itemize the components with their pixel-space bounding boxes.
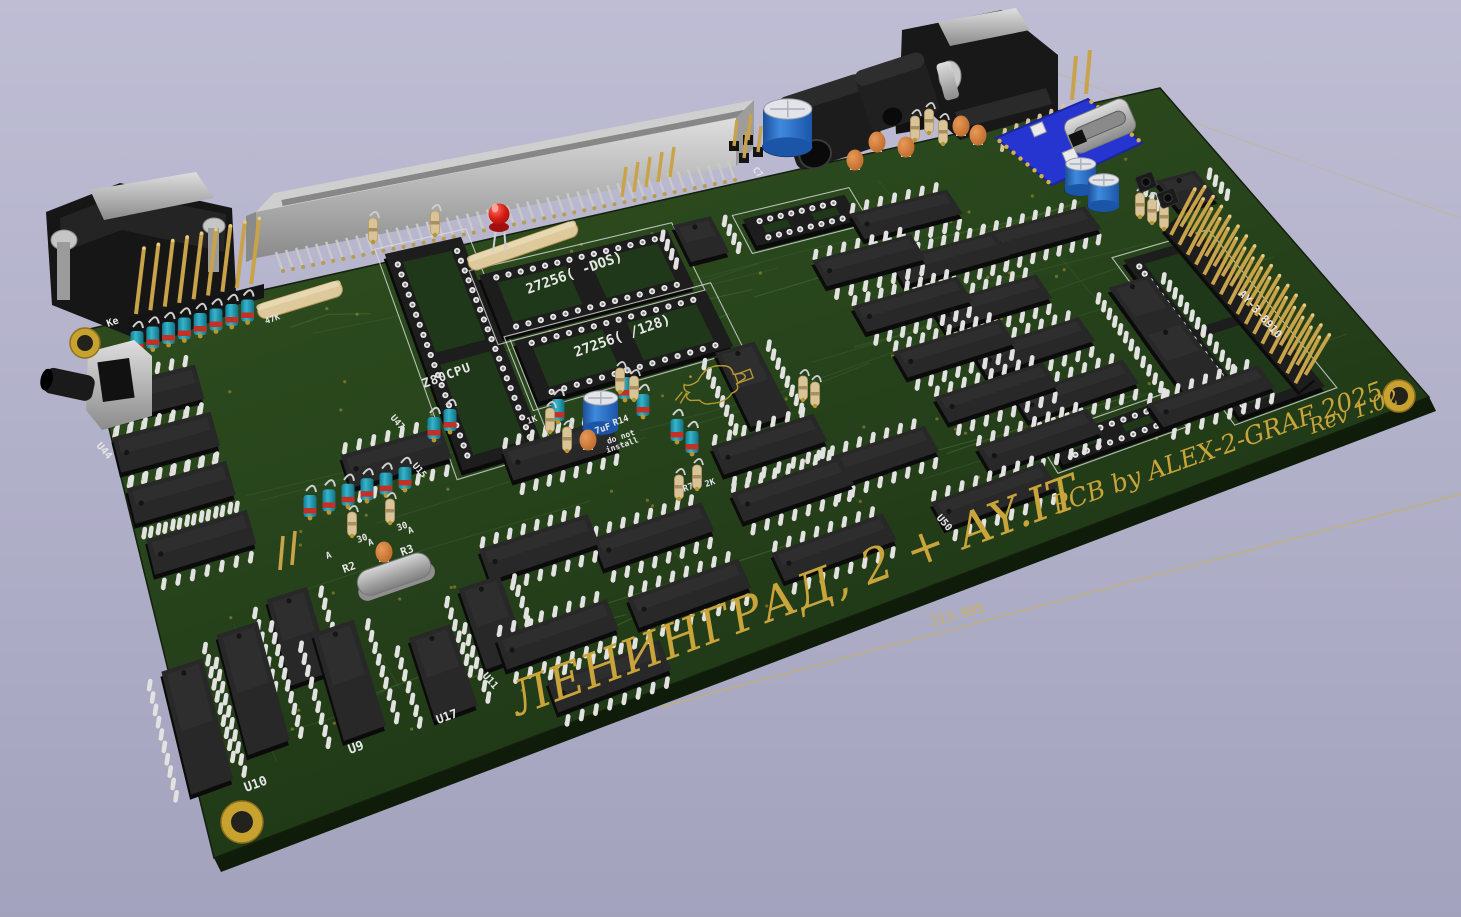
pad	[683, 188, 687, 192]
ic-notch	[286, 598, 291, 603]
ic-pin	[371, 632, 372, 640]
ic-pin	[294, 705, 295, 713]
ic-pin	[277, 646, 278, 654]
pin-tip	[142, 246, 146, 250]
via	[229, 616, 232, 619]
ic-pin	[1025, 270, 1026, 278]
ic-pin	[975, 318, 976, 326]
ic-notch	[745, 501, 750, 506]
ceramic-cap-body	[210, 309, 223, 331]
ic-pin	[893, 274, 894, 282]
cap-band	[637, 407, 650, 413]
ic-pin	[1186, 304, 1187, 312]
socket-hole-center	[580, 256, 583, 259]
ic-pin	[567, 562, 568, 570]
via	[964, 432, 967, 435]
ic-notch	[992, 453, 997, 458]
ic-pin	[1056, 373, 1057, 381]
ic-pin	[567, 716, 568, 724]
ic-pin	[602, 460, 603, 468]
ic-pin	[321, 715, 322, 723]
solder-pad	[677, 497, 681, 501]
ic-pin	[867, 294, 868, 302]
ic-pin	[373, 436, 374, 444]
ic-pin	[989, 473, 990, 481]
ic-pin	[899, 229, 900, 237]
resistor-band	[693, 475, 702, 479]
ic-pin	[906, 282, 907, 290]
ic-pin	[1006, 428, 1007, 436]
socket-hole-center	[642, 312, 645, 315]
ic-pin	[1022, 313, 1023, 321]
pin-tip	[1218, 217, 1221, 220]
socket-hole-center	[667, 305, 670, 308]
ic-pin	[446, 467, 447, 475]
ic-pin	[985, 281, 986, 289]
pin-tip	[1235, 237, 1238, 240]
ceramic-cap-body	[444, 409, 457, 431]
ic-pin	[990, 370, 991, 378]
ic-pin	[202, 458, 203, 466]
ic-pin	[523, 525, 524, 533]
ic-pin	[1014, 329, 1015, 337]
ic-pin	[522, 485, 523, 493]
ic-pin	[1149, 395, 1150, 403]
ic-pin	[1221, 184, 1222, 192]
ic-pin	[1084, 445, 1085, 453]
ic-pin	[472, 647, 473, 655]
socket-hole-center	[556, 261, 559, 264]
pin-tip	[171, 239, 175, 243]
ic-pin	[662, 232, 663, 240]
via	[453, 585, 456, 588]
ic-notch	[158, 551, 163, 556]
ic-pin	[220, 705, 221, 713]
socket-hole-center	[664, 358, 667, 361]
ic-pin	[935, 184, 936, 192]
ic-pin	[540, 571, 541, 579]
socket-hole-center	[1132, 433, 1135, 436]
ceramic-cap-body	[323, 489, 336, 511]
via	[1031, 194, 1034, 197]
solder-pad	[1162, 227, 1166, 231]
ic-pin	[401, 659, 402, 667]
ic-pin	[186, 408, 187, 416]
ic-pin	[522, 598, 523, 606]
ic-pin	[432, 471, 433, 479]
resistor-band	[799, 386, 808, 390]
ic-pin	[992, 432, 993, 440]
ic-pin	[562, 472, 563, 480]
ic-pin	[222, 507, 223, 515]
socket-hole-center	[426, 344, 429, 347]
ic-pin	[1072, 243, 1073, 251]
ceramic-cap-body	[304, 495, 317, 517]
ic-pin	[880, 290, 881, 298]
ic-pin	[328, 612, 329, 620]
ic-pin	[1067, 313, 1068, 321]
solder-pad	[548, 430, 552, 434]
ic-notch	[1164, 409, 1169, 414]
via	[1055, 275, 1058, 278]
ic-pin	[187, 517, 188, 525]
ic-pin	[984, 359, 985, 367]
resistor-band	[431, 221, 440, 225]
resistor-band	[1148, 209, 1157, 213]
module-castellation	[1032, 168, 1036, 172]
ic-pin	[988, 314, 989, 322]
pin-tip	[1245, 234, 1248, 237]
ic-pin	[541, 613, 542, 621]
ic-pin	[622, 519, 623, 527]
ic-pin	[178, 575, 179, 583]
ic-pin	[1027, 325, 1028, 333]
ic-pin	[658, 578, 659, 586]
ic-pin	[1070, 369, 1071, 377]
via	[398, 597, 401, 600]
ic-pin	[950, 383, 951, 391]
ic-pin	[802, 533, 803, 541]
ic-pin	[624, 695, 625, 703]
via	[450, 586, 453, 589]
ic-notch	[867, 314, 872, 319]
ic-pin	[957, 368, 958, 376]
ic-pin	[1034, 212, 1035, 220]
pin-tip	[1220, 205, 1223, 208]
module-castellation	[1136, 138, 1140, 142]
solder-pad	[182, 338, 187, 343]
solder-pad	[1150, 221, 1154, 225]
socket-hole-center	[799, 228, 802, 231]
ic-pin	[638, 689, 639, 697]
ic-pin	[595, 706, 596, 714]
ic-pin	[998, 355, 999, 363]
cap-band	[686, 444, 699, 450]
pin-tip	[229, 224, 233, 228]
ic-notch	[236, 633, 241, 638]
ic-pin	[554, 608, 555, 616]
ic-pin	[375, 644, 376, 652]
via	[859, 500, 862, 503]
ic-pin	[768, 342, 769, 350]
ic-notch	[1177, 178, 1182, 183]
socket-hole-center	[555, 335, 558, 338]
ic-pin	[382, 667, 383, 675]
solder-pad	[632, 398, 636, 402]
ic-pin	[328, 739, 329, 747]
ic-pin	[1098, 294, 1099, 302]
ceramic-cap-body	[241, 300, 254, 322]
ic-pin	[1018, 362, 1019, 370]
ic-pin	[1103, 302, 1104, 310]
ic-pin	[893, 286, 894, 294]
ceramic-cap-body	[342, 484, 355, 506]
ic-pin	[387, 432, 388, 440]
ic-pin	[236, 558, 237, 566]
socket-hole-center	[407, 293, 410, 296]
pin-tip	[257, 217, 261, 221]
ic-pin	[1187, 424, 1188, 432]
pad	[432, 239, 436, 243]
ic-pin	[966, 273, 967, 281]
solder-pad	[214, 329, 219, 334]
ic-pin	[1060, 205, 1061, 213]
ic-pin	[144, 419, 145, 427]
pin-tip	[1268, 276, 1271, 279]
socket-hole-center	[506, 377, 509, 380]
via	[291, 727, 294, 730]
ic-pin	[1008, 219, 1009, 227]
ic-notch	[181, 670, 186, 675]
ic-pin	[1149, 366, 1150, 374]
ic-pin	[1047, 414, 1048, 422]
ic-pin	[767, 520, 768, 528]
led-body	[489, 204, 510, 225]
socket-hole-center	[788, 231, 791, 234]
ic-pin	[1013, 407, 1014, 415]
solder-pad	[432, 438, 437, 443]
ic-pin	[709, 539, 710, 547]
ic-pin	[404, 671, 405, 679]
resistor-band	[616, 378, 625, 382]
ic-pin	[230, 504, 231, 512]
via	[325, 307, 328, 310]
socket-hole-center	[397, 263, 400, 266]
socket-hole-center	[651, 362, 654, 365]
ic-pin	[893, 473, 894, 481]
pad	[281, 269, 285, 273]
solder-pad	[327, 510, 332, 515]
pin-tip	[1193, 187, 1196, 190]
socket-hole-center	[498, 357, 501, 360]
ic-pin	[1098, 440, 1099, 448]
via	[1148, 382, 1151, 385]
ic-notch	[492, 559, 497, 564]
socket-hole-center	[676, 284, 679, 287]
ic-pin	[788, 538, 789, 546]
module-castellation	[997, 139, 1001, 143]
ic-pin	[393, 702, 394, 710]
ic-pin	[1137, 350, 1138, 358]
ic-pin	[982, 227, 983, 235]
socket-hole-center	[433, 364, 436, 367]
led-highlight	[492, 204, 499, 213]
ic-pin	[816, 528, 817, 536]
pin-tip	[243, 220, 247, 224]
solder-pad	[150, 347, 155, 352]
pad	[361, 253, 365, 257]
disc-cap-body	[580, 430, 597, 451]
socket-hole-center	[605, 250, 608, 253]
via	[430, 413, 433, 416]
pcb-3d-viewport[interactable]: 213.995 ЛЕНИНГРАД, 2 + AY.IT PCB by ALEX…	[0, 0, 1461, 917]
ic-pin	[774, 470, 775, 478]
ic-pin	[778, 360, 779, 368]
ic-pin	[595, 553, 596, 561]
socket-hole-center	[513, 397, 516, 400]
ic-pin	[944, 224, 945, 232]
ic-pin	[682, 549, 683, 557]
ic-pin	[173, 465, 174, 473]
solder-pad	[927, 131, 931, 135]
ic-pin	[933, 275, 934, 283]
solder-pad	[813, 404, 817, 408]
via	[299, 543, 302, 546]
socket-hole-center	[1155, 425, 1158, 428]
socket-hole-center	[809, 225, 812, 228]
cap-band	[178, 331, 191, 337]
socket-hole-center	[641, 241, 644, 244]
ic-pin	[222, 683, 223, 691]
via	[297, 709, 300, 712]
socket-hole-center	[832, 202, 835, 205]
socket-hole-center	[676, 355, 679, 358]
pad	[663, 192, 667, 196]
ic-pin	[304, 655, 305, 663]
ic-pin	[1054, 393, 1055, 401]
ic-pin	[1257, 399, 1258, 407]
ic-pin	[271, 622, 272, 630]
ic-pin	[476, 659, 477, 667]
cap-band	[342, 497, 355, 503]
solder-pad	[198, 334, 203, 339]
ic-pin	[234, 731, 235, 739]
ic-pin	[192, 571, 193, 579]
ic-pin	[1031, 357, 1032, 365]
pin-tip	[1319, 323, 1322, 326]
ic-pin	[986, 416, 987, 424]
socket-hole-center	[494, 348, 497, 351]
ic-pin	[454, 621, 455, 629]
ic-pin	[933, 492, 934, 500]
via	[339, 408, 342, 411]
socket-hole-center	[1120, 437, 1123, 440]
ic-pin	[318, 703, 319, 711]
socket-hole-center	[568, 332, 571, 335]
ic-pin	[1154, 375, 1155, 383]
ic-pin	[1163, 390, 1164, 398]
ic-pin	[513, 576, 514, 584]
ic-notch	[606, 547, 611, 552]
ic-pin	[616, 456, 617, 464]
ic-pin	[691, 497, 692, 505]
socket-hole-center	[564, 312, 567, 315]
socket-hole-center	[588, 380, 591, 383]
ic-pin	[1097, 360, 1098, 368]
pin-tip	[185, 235, 189, 239]
pin-tip	[1276, 286, 1279, 289]
pad	[733, 178, 737, 182]
pad	[552, 214, 556, 218]
ic-pin	[852, 205, 853, 213]
ic-pin	[496, 534, 497, 542]
ic-pin	[726, 407, 727, 415]
ic-pin	[596, 593, 597, 601]
ic-pin	[1177, 385, 1178, 393]
ic-pin	[214, 680, 215, 688]
socket-hole-center	[532, 267, 535, 270]
ic-pin	[568, 603, 569, 611]
ic-pin	[217, 692, 218, 700]
ic-pin	[1157, 201, 1158, 209]
ic-pin	[175, 792, 176, 800]
cap-band	[380, 486, 393, 492]
ic-pin	[610, 700, 611, 708]
ic-pin	[1169, 282, 1170, 290]
ic-pin	[641, 563, 642, 571]
ic-pin	[858, 513, 859, 521]
resistor-band	[546, 418, 555, 422]
ic-pin	[747, 479, 748, 487]
pad	[703, 184, 707, 188]
ic-pin	[1085, 239, 1086, 247]
ic-pin	[778, 463, 779, 471]
ic-pin	[900, 425, 901, 433]
ic-notch	[429, 636, 434, 641]
ic-pin	[773, 418, 774, 426]
via	[1124, 158, 1127, 161]
pad	[311, 263, 315, 267]
ic-pin	[836, 290, 837, 298]
socket-hole-center	[680, 302, 683, 305]
ic-notch	[1163, 330, 1168, 335]
ic-notch	[509, 647, 514, 652]
pin-tip	[1203, 185, 1206, 188]
ic-pin	[344, 444, 345, 452]
ic-pin	[935, 459, 936, 467]
ic-pin	[535, 481, 536, 489]
pad	[412, 243, 416, 247]
ic-pin	[929, 320, 930, 328]
ic-pin	[1125, 333, 1126, 341]
ceramic-cap-body	[162, 322, 175, 344]
via	[759, 271, 762, 274]
socket-hole-center	[626, 369, 629, 372]
ic-pin	[672, 573, 673, 581]
ic-pin	[219, 671, 220, 679]
resistor-band	[369, 228, 378, 232]
ic-pin	[1050, 361, 1051, 369]
ic-pin	[1222, 352, 1223, 360]
ic-pin	[1228, 360, 1229, 368]
socket-hole-center	[418, 324, 421, 327]
socket-hole-center	[639, 366, 642, 369]
ic-pin	[374, 488, 375, 496]
solder-pad	[166, 343, 171, 348]
ic-pin	[550, 517, 551, 525]
audio-jack-opening	[97, 358, 134, 402]
ic-pin	[1218, 371, 1219, 379]
ic-pin	[851, 286, 852, 294]
pad	[321, 261, 325, 265]
ic-pin	[200, 404, 201, 412]
ic-pin	[1094, 404, 1095, 412]
socket-hole-center	[655, 309, 658, 312]
ic-pin	[969, 308, 970, 316]
socket-hole-center	[448, 404, 451, 407]
ic-pin	[1035, 309, 1036, 317]
ic-pin	[204, 644, 205, 652]
socket-hole-center	[525, 426, 528, 429]
ic-pin	[171, 361, 172, 369]
socket-hole-center	[1122, 418, 1125, 421]
pad	[371, 251, 375, 255]
ic-pin	[1160, 383, 1161, 391]
ic-pin	[1243, 404, 1244, 412]
tact-button-cap	[1164, 194, 1172, 202]
pin-tip	[200, 231, 204, 235]
cap-band	[671, 432, 684, 438]
